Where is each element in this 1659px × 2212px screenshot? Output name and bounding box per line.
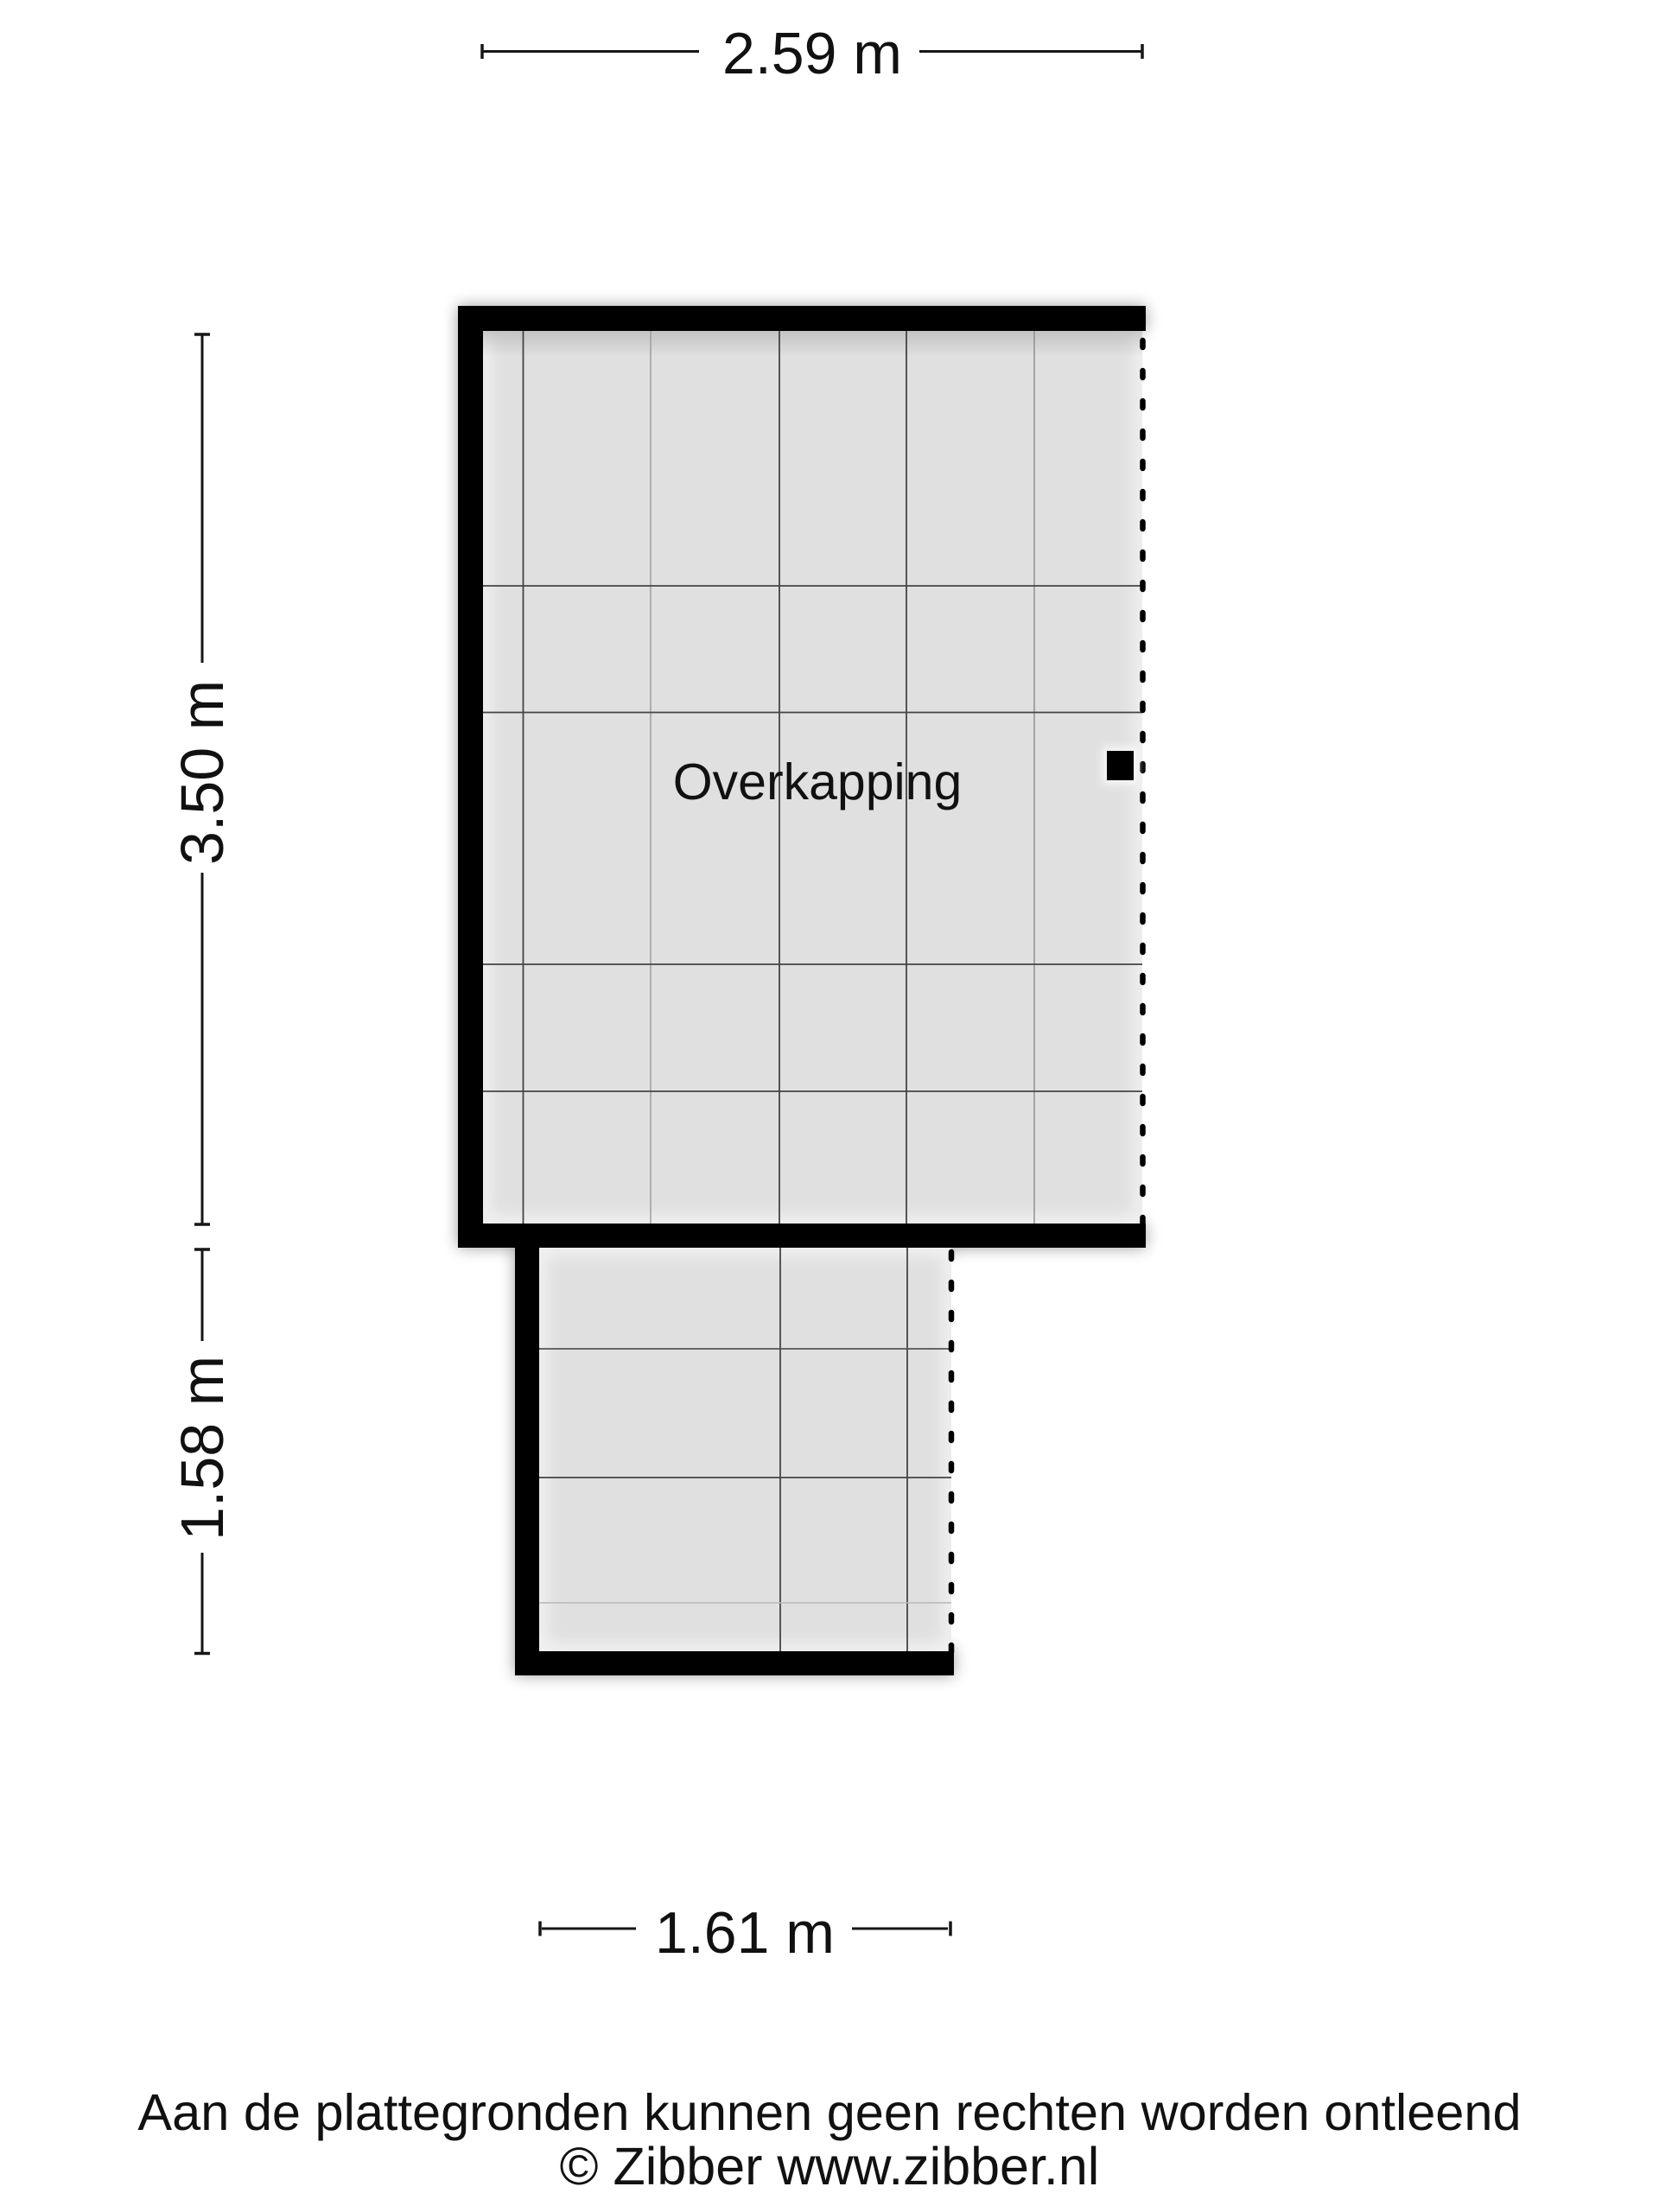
svg-text:Aan de plattegronden kunnen ge: Aan de plattegronden kunnen geen rechten… — [137, 2083, 1521, 2141]
svg-text:1.58 m: 1.58 m — [168, 1356, 236, 1541]
svg-text:3.50 m: 3.50 m — [168, 680, 236, 865]
svg-text:Overkapping: Overkapping — [673, 753, 963, 810]
svg-text:2.59 m: 2.59 m — [722, 21, 902, 86]
svg-text:© Zibber www.zibber.nl: © Zibber www.zibber.nl — [560, 2137, 1100, 2196]
svg-text:1.61 m: 1.61 m — [655, 1900, 835, 1966]
